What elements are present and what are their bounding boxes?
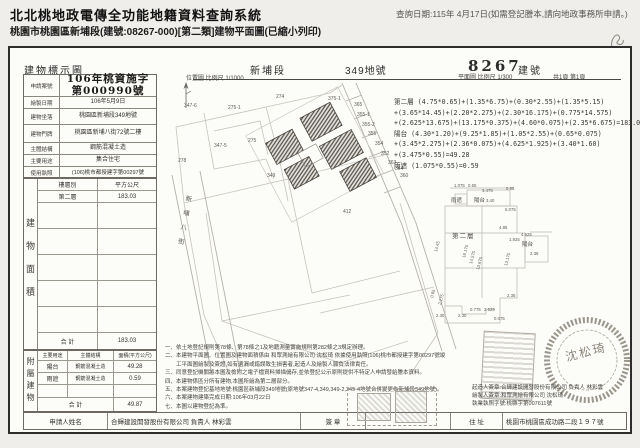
dimension-label: 2.35 xyxy=(507,293,516,298)
meta-table: 申請案號 106年桃資施字 第000990號 繪製日期 106年5月9日 建物坐… xyxy=(23,74,157,178)
meta-row-label: 繪製日期 xyxy=(24,97,60,108)
parcel-label: 360 xyxy=(400,173,409,179)
note-line: 四、本建物係區分所有建物,本圖所繪為第二層部分。 xyxy=(165,378,469,386)
floor-table-vertical-label: 建物面積 xyxy=(24,218,37,310)
dimension-label: 1.075 xyxy=(454,183,465,188)
meta-row-value: 集合住宅 xyxy=(60,155,156,166)
building-number-label: 建號 xyxy=(518,62,542,77)
screenshot-root: 北北桃地政電傳全功能地籍資料查詢系統 查詢日期:115年 4月17日(如需登記謄… xyxy=(0,0,640,448)
dimension-label: 0.775 xyxy=(470,307,481,312)
meta-case-label: 申請案號 xyxy=(24,75,60,96)
parcel-label: 274 xyxy=(276,94,285,100)
attached-total-value: 49.87 xyxy=(114,398,156,411)
document-subtitle: 桃園市桃園區新埔段(建號:08267-000)[第二類]建物平面圖(已縮小列印) xyxy=(10,23,321,38)
formula-line: +(2.625*13.675)+(13.175*0.375)+(4.60*0.0… xyxy=(394,118,640,129)
note-line: 三、同意登記機關將本圖及檢附之電子檔資料掃描儲存,並依登記公示原則提供不特定人申… xyxy=(165,369,469,377)
address-label: 住 址 xyxy=(451,413,503,429)
meta-row-label: 主要用途 xyxy=(24,155,60,166)
area-cell xyxy=(98,255,156,280)
dimension-label: 16.175 xyxy=(461,244,469,259)
attached-total-label: 合 計 xyxy=(38,398,114,411)
balcony-label: 陽台 xyxy=(474,196,486,204)
note-line: 一、依土地登記規則第78條、第78條之1及地籍測量實施規則第282條之3規定辦理… xyxy=(165,344,469,352)
structure-col-header: 主體結構 xyxy=(68,351,114,360)
land-number: 349地號 xyxy=(345,62,387,77)
signer-line: 執業執照字號:桃縣字第007611號 xyxy=(472,400,603,408)
balcony-label: 陽台 xyxy=(522,240,534,248)
dimension-label: 1.925 xyxy=(509,237,520,242)
dimension-label: 0.55 xyxy=(506,186,515,191)
dimension-label: 3.40 xyxy=(486,198,495,203)
floor-label: 第二層 xyxy=(452,231,475,240)
dimension-label: 4.625 xyxy=(521,232,532,237)
structure-cell: 鋼筋混凝土造 xyxy=(68,373,114,384)
floor-cell xyxy=(38,307,98,332)
area-cell xyxy=(98,307,156,332)
dimension-label: 5.075 xyxy=(505,207,516,212)
dimension-label: 0.65 xyxy=(429,288,436,298)
parcel-label: 365 xyxy=(354,102,363,108)
meta-row-label: 主體結構 xyxy=(24,143,60,154)
site-scale: 位置圖 比例尺 1/1000 xyxy=(186,73,244,82)
applicant-name-label: 申請人姓名 xyxy=(24,413,108,429)
signers-block: 起造人簽章:合輝建設開發股份有限公司 負責人 林彩雲 繪製人簽章:和眾測繪有限公… xyxy=(472,384,603,408)
dimension-label: 0.075 xyxy=(494,316,505,321)
dimension-label: 0.55 xyxy=(468,183,477,188)
parcel-label: 354 xyxy=(375,141,384,147)
parcel-label: 412 xyxy=(343,209,352,215)
canopy-label: 雨遮 xyxy=(451,196,463,204)
formula-line: +(3.65*14.45)+(2.20*2.275)+(2.30*16.175)… xyxy=(394,108,640,119)
use-col-header: 主要用途 xyxy=(38,351,68,360)
stamp-box xyxy=(347,388,437,426)
floor-cell xyxy=(38,255,98,280)
parcel-label: 278 xyxy=(178,158,187,164)
meta-row-value: 桃園區新埔八街72號二樓 xyxy=(60,125,156,142)
surveyor-seal-name: 沈松琦 xyxy=(564,339,608,364)
area-cell xyxy=(98,229,156,254)
note-line: 二、本建物平面圖、位置圖及建物面積係由 和眾測繪有限公司 沈松琦 依據使用執照(… xyxy=(165,352,469,360)
use-cell: 陽台 xyxy=(38,361,68,372)
meta-row-label: 建物坐落 xyxy=(24,109,60,124)
formula-line: +(3.45*2.275)+(2.36*0.075)+(4.625*1.925)… xyxy=(394,139,640,150)
attached-table-vertical-label: 附屬建物 xyxy=(25,357,36,405)
area-cell: 0.59 xyxy=(114,373,156,384)
parcel-label: 355 xyxy=(368,131,377,137)
meta-case-value: 106年桃資施字 第000990號 xyxy=(60,75,156,96)
use-cell: 雨遮 xyxy=(38,373,68,384)
dimension-label: 3.475 xyxy=(482,188,493,193)
section-name: 新埔段 xyxy=(250,62,286,77)
area-col-header: 面積(平方公尺) xyxy=(114,351,156,360)
parcel-label: 275-1 xyxy=(228,105,241,111)
floor-total-value: 183.03 xyxy=(98,333,156,349)
attached-building-table: 附屬建物 主要用途 主體結構 面積(平方公尺) 陽台 鋼筋混凝土造 49.28 … xyxy=(23,350,157,412)
stamp-impression xyxy=(357,393,391,421)
parcel-label: 355-2 xyxy=(362,122,375,128)
dimension-label: 14.45 xyxy=(433,240,441,252)
area-formulas: 第二層 (4.75*0.65)+(1.35*6.75)+(0.30*2.55)+… xyxy=(394,97,640,171)
parcel-label: 355-1 xyxy=(357,112,370,118)
case-line1: 106年桃資施字 xyxy=(67,74,149,85)
meta-row-value: 106年5月9日 xyxy=(60,97,156,108)
parcel-label: 349 xyxy=(267,173,276,179)
meta-row-value: 鋼筋混凝土造 xyxy=(60,143,156,154)
floor-col-header: 樓層別 xyxy=(38,179,98,190)
area-cell xyxy=(98,281,156,306)
parcel-label: 352 xyxy=(381,151,390,157)
note-line: 工平面圖繪製及簽證,如有遺漏或錯誤致生損害者,起造人及繪製人願負法律責任。 xyxy=(165,361,469,369)
area-cell xyxy=(98,203,156,228)
query-date: 查詢日期:115年 4月17日(如需登記謄本,請向地政事務所申請。) xyxy=(396,8,628,20)
dimension-label: 2.30 xyxy=(458,313,467,318)
formula-line: +(3.475*0.55)=49.28 xyxy=(394,150,640,161)
dimension-label: 2.30 xyxy=(436,313,445,318)
floor-cell xyxy=(38,203,98,228)
signer-line: 繪製人簽章:和眾測繪有限公司 沈松琦 xyxy=(472,392,603,400)
meta-row-value: 桃園區新埔段349地號 xyxy=(60,109,156,124)
dimension-label: 2.625 xyxy=(484,307,495,312)
system-title: 北北桃地政電傳全功能地籍資料查詢系統 xyxy=(10,5,262,24)
dimension-label: 13.175 xyxy=(503,252,511,267)
meta-row-label: 建物門牌 xyxy=(24,125,60,142)
applicant-row: 申請人姓名 合輝建設開發股份有限公司 負責人 林彩雲 簽 章 住 址 桃園市桃園… xyxy=(23,412,627,430)
floor-total-label: 合 計 xyxy=(38,333,98,349)
dimension-label: 2.36 xyxy=(530,251,539,256)
floor-cell xyxy=(38,281,98,306)
applicant-name-value: 合輝建設開發股份有限公司 負責人 林彩雲 xyxy=(108,413,301,429)
floor-cell xyxy=(38,229,98,254)
address-value: 桃園市桃園區成功路二段１９７號 xyxy=(503,413,626,429)
parcel-label: 375-1 xyxy=(328,96,341,102)
parcel-label: 347-5 xyxy=(214,143,227,149)
dimension-label: 14.575 xyxy=(468,250,476,265)
dimension-label: 4.85 xyxy=(499,225,508,230)
floor-cell: 第二層 xyxy=(38,191,98,202)
area-cell: 183.03 xyxy=(98,191,156,202)
document-frame: 建物標示圖 新埔段 349地號 8267 建號 位置圖 比例尺 1/1000 平… xyxy=(8,46,632,434)
area-col-header: 平方公尺 xyxy=(98,179,156,190)
plan-scale: 平面圖 比例尺 1/300 xyxy=(458,72,512,81)
page-indicator: 共1頁 第1頁 xyxy=(553,72,585,81)
floor-area-table: 建物面積 樓層別 平方公尺 第二層 183.03 xyxy=(23,178,157,350)
area-cell: 49.28 xyxy=(114,361,156,372)
structure-cell: 鋼筋混凝土造 xyxy=(68,361,114,372)
parcel-label: 275 xyxy=(248,138,257,144)
formula-line: 雨遮 (1.075*0.55)=0.59 xyxy=(394,161,640,172)
formula-line: 陽台 (4.30*1.20)+(9.25*1.85)+(1.05*2.55)+(… xyxy=(394,129,640,140)
case-line2: 第000990號 xyxy=(67,86,149,97)
formula-line: 第二層 (4.75*0.65)+(1.35*6.75)+(0.30*2.55)+… xyxy=(394,97,640,108)
dimension-label: 2.275 xyxy=(437,293,445,305)
parcel-label: 347-6 xyxy=(184,103,197,109)
stamp-impression xyxy=(395,391,427,423)
signer-line: 起造人簽章:合輝建設開發股份有限公司 負責人 林彩雲 xyxy=(472,384,603,392)
